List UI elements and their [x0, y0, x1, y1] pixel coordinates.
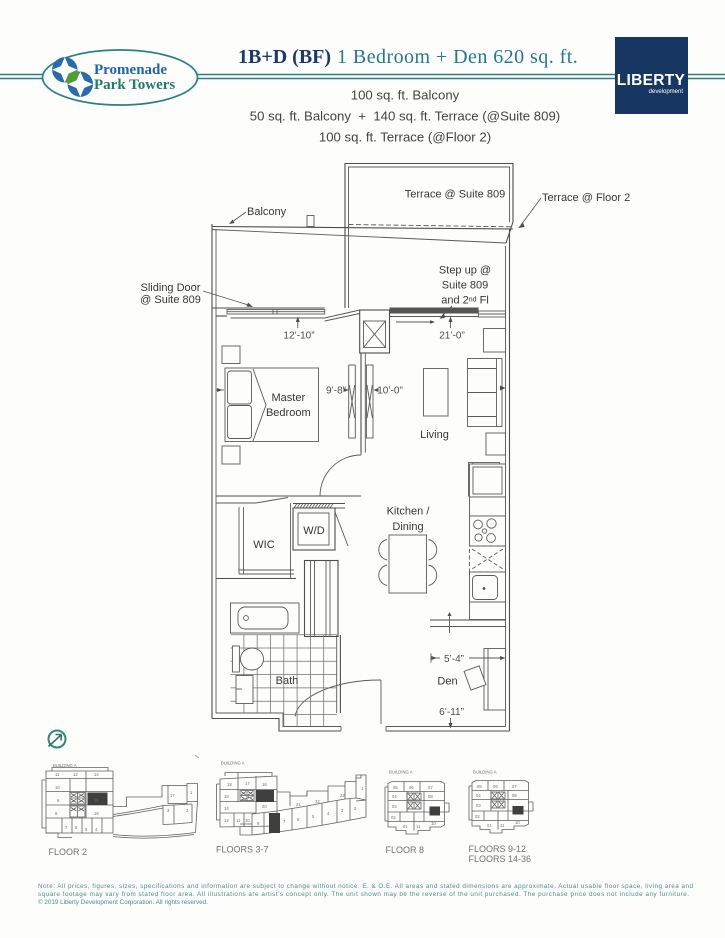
svg-text:07: 07: [428, 785, 433, 790]
svg-text:FLOORS 14-36: FLOORS 14-36: [469, 854, 532, 864]
svg-text:14: 14: [224, 806, 229, 811]
svg-text:04: 04: [392, 794, 397, 799]
svg-text:3: 3: [167, 808, 170, 813]
svg-text:6: 6: [75, 825, 78, 830]
svg-text:8: 8: [55, 811, 58, 816]
svg-text:1: 1: [190, 790, 193, 795]
svg-text:17: 17: [245, 781, 250, 786]
svg-text:9: 9: [57, 798, 60, 803]
svg-text:6: 6: [297, 817, 300, 822]
svg-text:11: 11: [55, 772, 60, 777]
svg-text:9: 9: [257, 821, 260, 826]
svg-text:and 2nd Fl: and 2nd Fl: [441, 295, 489, 307]
svg-text:02: 02: [475, 814, 480, 819]
svg-text:Promenade: Promenade: [94, 62, 167, 78]
svg-text:Living: Living: [420, 429, 449, 441]
svg-text:11: 11: [500, 823, 505, 828]
svg-text:FLOOR 2: FLOOR 2: [49, 847, 88, 857]
svg-text:11: 11: [236, 818, 241, 823]
svg-text:7: 7: [65, 825, 68, 830]
svg-text:14: 14: [94, 772, 99, 777]
svg-text:10’-0”: 10’-0”: [377, 386, 403, 397]
svg-text:Note: All prices, figures, siz: Note: All prices, figures, sizes, specif…: [38, 883, 693, 890]
svg-text:10: 10: [431, 821, 436, 826]
svg-text:Bedroom: Bedroom: [266, 407, 311, 419]
svg-text:15: 15: [224, 794, 229, 799]
svg-text:06: 06: [493, 784, 498, 789]
svg-text:5’-4”: 5’-4”: [444, 654, 464, 665]
svg-text:10: 10: [245, 818, 250, 823]
svg-text:10: 10: [55, 785, 60, 790]
svg-text:17: 17: [170, 793, 175, 798]
svg-text:2: 2: [186, 808, 189, 813]
svg-text:1B+D (BF): 1B+D (BF): [238, 46, 331, 68]
svg-text:BUILDING A: BUILDING A: [389, 770, 413, 775]
svg-text:WIC: WIC: [253, 539, 274, 551]
svg-text:© 2019 Liberty Development Cor: © 2019 Liberty Development Corporation. …: [38, 898, 208, 906]
svg-text:BUILDING A: BUILDING A: [473, 770, 497, 775]
svg-text:15: 15: [94, 798, 99, 803]
svg-text:12’-10”: 12’-10”: [283, 331, 314, 342]
svg-text:4: 4: [327, 811, 330, 816]
svg-text:development: development: [649, 89, 684, 95]
svg-text:12: 12: [73, 772, 78, 777]
svg-text:50 sq. ft. Balcony + 140 sq.: 50 sq. ft. Balcony + 140 sq. ft. Terrace…: [250, 109, 560, 124]
svg-text:6’-11”: 6’-11”: [439, 707, 464, 718]
svg-text:11: 11: [416, 824, 421, 829]
svg-text:square footage may vary from s: square footage may vary from stated floo…: [38, 891, 689, 898]
svg-text:FLOORS 9-12: FLOORS 9-12: [469, 844, 527, 854]
svg-text:9’-8”: 9’-8”: [326, 386, 346, 397]
svg-text:Den: Den: [437, 676, 457, 688]
svg-text:W/D: W/D: [303, 525, 324, 537]
svg-text:Suite 809: Suite 809: [442, 280, 488, 292]
svg-text:FLOOR 8: FLOOR 8: [386, 845, 425, 855]
svg-text:21: 21: [296, 802, 301, 807]
svg-text:Terrace @ Floor 2: Terrace @ Floor 2: [542, 192, 630, 204]
svg-text:Step up @: Step up @: [439, 265, 491, 277]
svg-text:2: 2: [354, 806, 357, 811]
svg-text:100 sq. ft. Balcony: 100 sq. ft. Balcony: [351, 88, 460, 103]
svg-text:02: 02: [391, 815, 396, 820]
svg-text:08: 08: [428, 794, 433, 799]
svg-text:21’-0”: 21’-0”: [439, 331, 465, 342]
svg-text:Sliding Door: Sliding Door: [141, 282, 201, 294]
svg-text:20: 20: [262, 804, 267, 809]
svg-text:5: 5: [312, 814, 315, 819]
svg-text:Balcony: Balcony: [247, 206, 287, 218]
svg-text:Kitchen /: Kitchen /: [387, 506, 431, 518]
svg-text:04: 04: [476, 793, 481, 798]
svg-text:16: 16: [94, 811, 99, 816]
svg-text:Master: Master: [271, 392, 305, 404]
svg-text:22: 22: [340, 793, 345, 798]
svg-text:06: 06: [409, 785, 414, 790]
svg-text:03: 03: [476, 803, 481, 808]
svg-text:Bath: Bath: [276, 675, 299, 687]
svg-text:16: 16: [262, 782, 267, 787]
svg-text:BUILDING A: BUILDING A: [221, 761, 245, 766]
svg-text:05: 05: [393, 785, 398, 790]
svg-text:100 sq. ft. Terrace (@Floor 2): 100 sq. ft. Terrace (@Floor 2): [319, 130, 491, 145]
svg-text:1: 1: [361, 786, 364, 791]
svg-text:10: 10: [515, 820, 520, 825]
svg-text:FLOORS 3-7: FLOORS 3-7: [216, 845, 269, 855]
svg-text:@ Suite 809: @ Suite 809: [140, 294, 201, 306]
svg-text:07: 07: [512, 784, 517, 789]
svg-text:08: 08: [512, 793, 517, 798]
svg-text:Dining: Dining: [392, 521, 423, 533]
svg-text:01: 01: [403, 824, 408, 829]
svg-text:1 Bedroom + Den 620 sq. ft.: 1 Bedroom + Den 620 sq. ft.: [337, 46, 578, 68]
svg-text:18: 18: [227, 782, 232, 787]
svg-text:Terrace @ Suite 809: Terrace @ Suite 809: [405, 189, 505, 201]
svg-text:12: 12: [224, 818, 229, 823]
svg-text:7: 7: [283, 819, 286, 824]
svg-text:05: 05: [477, 784, 482, 789]
svg-text:Park Towers: Park Towers: [94, 77, 175, 93]
svg-text:03: 03: [392, 804, 397, 809]
svg-text:01: 01: [487, 823, 492, 828]
svg-text:3: 3: [341, 808, 344, 813]
svg-text:22: 22: [315, 799, 320, 804]
svg-text:4: 4: [95, 827, 98, 832]
svg-text:5: 5: [85, 827, 88, 832]
svg-text:LIBERTY: LIBERTY: [617, 72, 686, 89]
